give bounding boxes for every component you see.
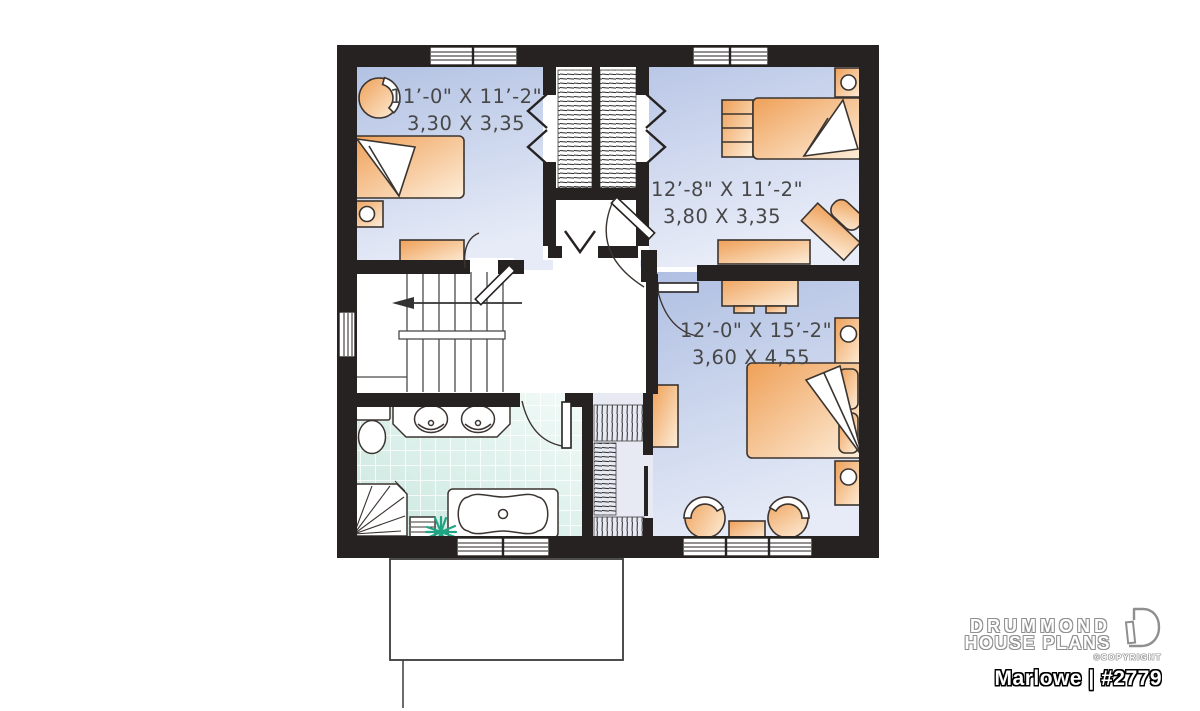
bedroom2-imperial: 12’-8" X 11’-2" [651, 178, 803, 201]
window-bedroom2 [693, 47, 768, 65]
tall-dresser [652, 385, 678, 447]
shelf [718, 240, 810, 264]
window-master [683, 538, 812, 556]
drummond-logo-icon [1118, 602, 1162, 652]
closet-left-rod [558, 70, 592, 188]
master-metric: 3,60 X 4,55 [692, 346, 810, 369]
sink [462, 406, 495, 433]
brand-name: DRUMMOND HOUSE PLANS [964, 618, 1111, 652]
plan-title: Marlowe | #2779 [964, 667, 1162, 691]
bedroom2-metric: 3,80 X 3,35 [663, 205, 781, 228]
bedroom1-imperial: 11’-0" X 11’-2" [390, 85, 542, 108]
window-stair-left [339, 312, 355, 357]
window-bedroom1 [430, 47, 517, 65]
lamp [360, 207, 375, 222]
master-imperial: 12’-0" X 15’-2" [680, 319, 832, 342]
floor-plan-page: 11’-0" X 11’-2" 3,30 X 3,35 12’-8" X 11’… [0, 0, 1200, 711]
brand-copyright: ©COPYRIGHT [964, 653, 1162, 662]
branding: DRUMMOND HOUSE PLANS ©COPYRIGHT Marlowe … [964, 602, 1162, 691]
wall-top [337, 45, 879, 67]
bedroom1-metric: 3,30 X 3,35 [407, 112, 525, 135]
lamp [841, 75, 856, 90]
brand-line2: HOUSE PLANS [964, 635, 1111, 652]
toilet-bowl [359, 421, 386, 454]
closet-right-rod [600, 70, 636, 188]
brand-row: DRUMMOND HOUSE PLANS [964, 602, 1162, 652]
sink [415, 406, 448, 433]
window-bathroom [457, 538, 549, 556]
walkin-door-leaf [644, 466, 648, 516]
wall-left [337, 45, 357, 558]
corner-shower [352, 484, 407, 536]
walkin-rod-top [594, 405, 644, 441]
staircase [357, 272, 505, 392]
walkin-rod-left [594, 443, 616, 515]
stair-handrail [399, 331, 505, 339]
lamp [841, 469, 857, 485]
porch-outline-below [390, 559, 623, 708]
lamp [841, 326, 857, 342]
wall-right [859, 45, 879, 558]
